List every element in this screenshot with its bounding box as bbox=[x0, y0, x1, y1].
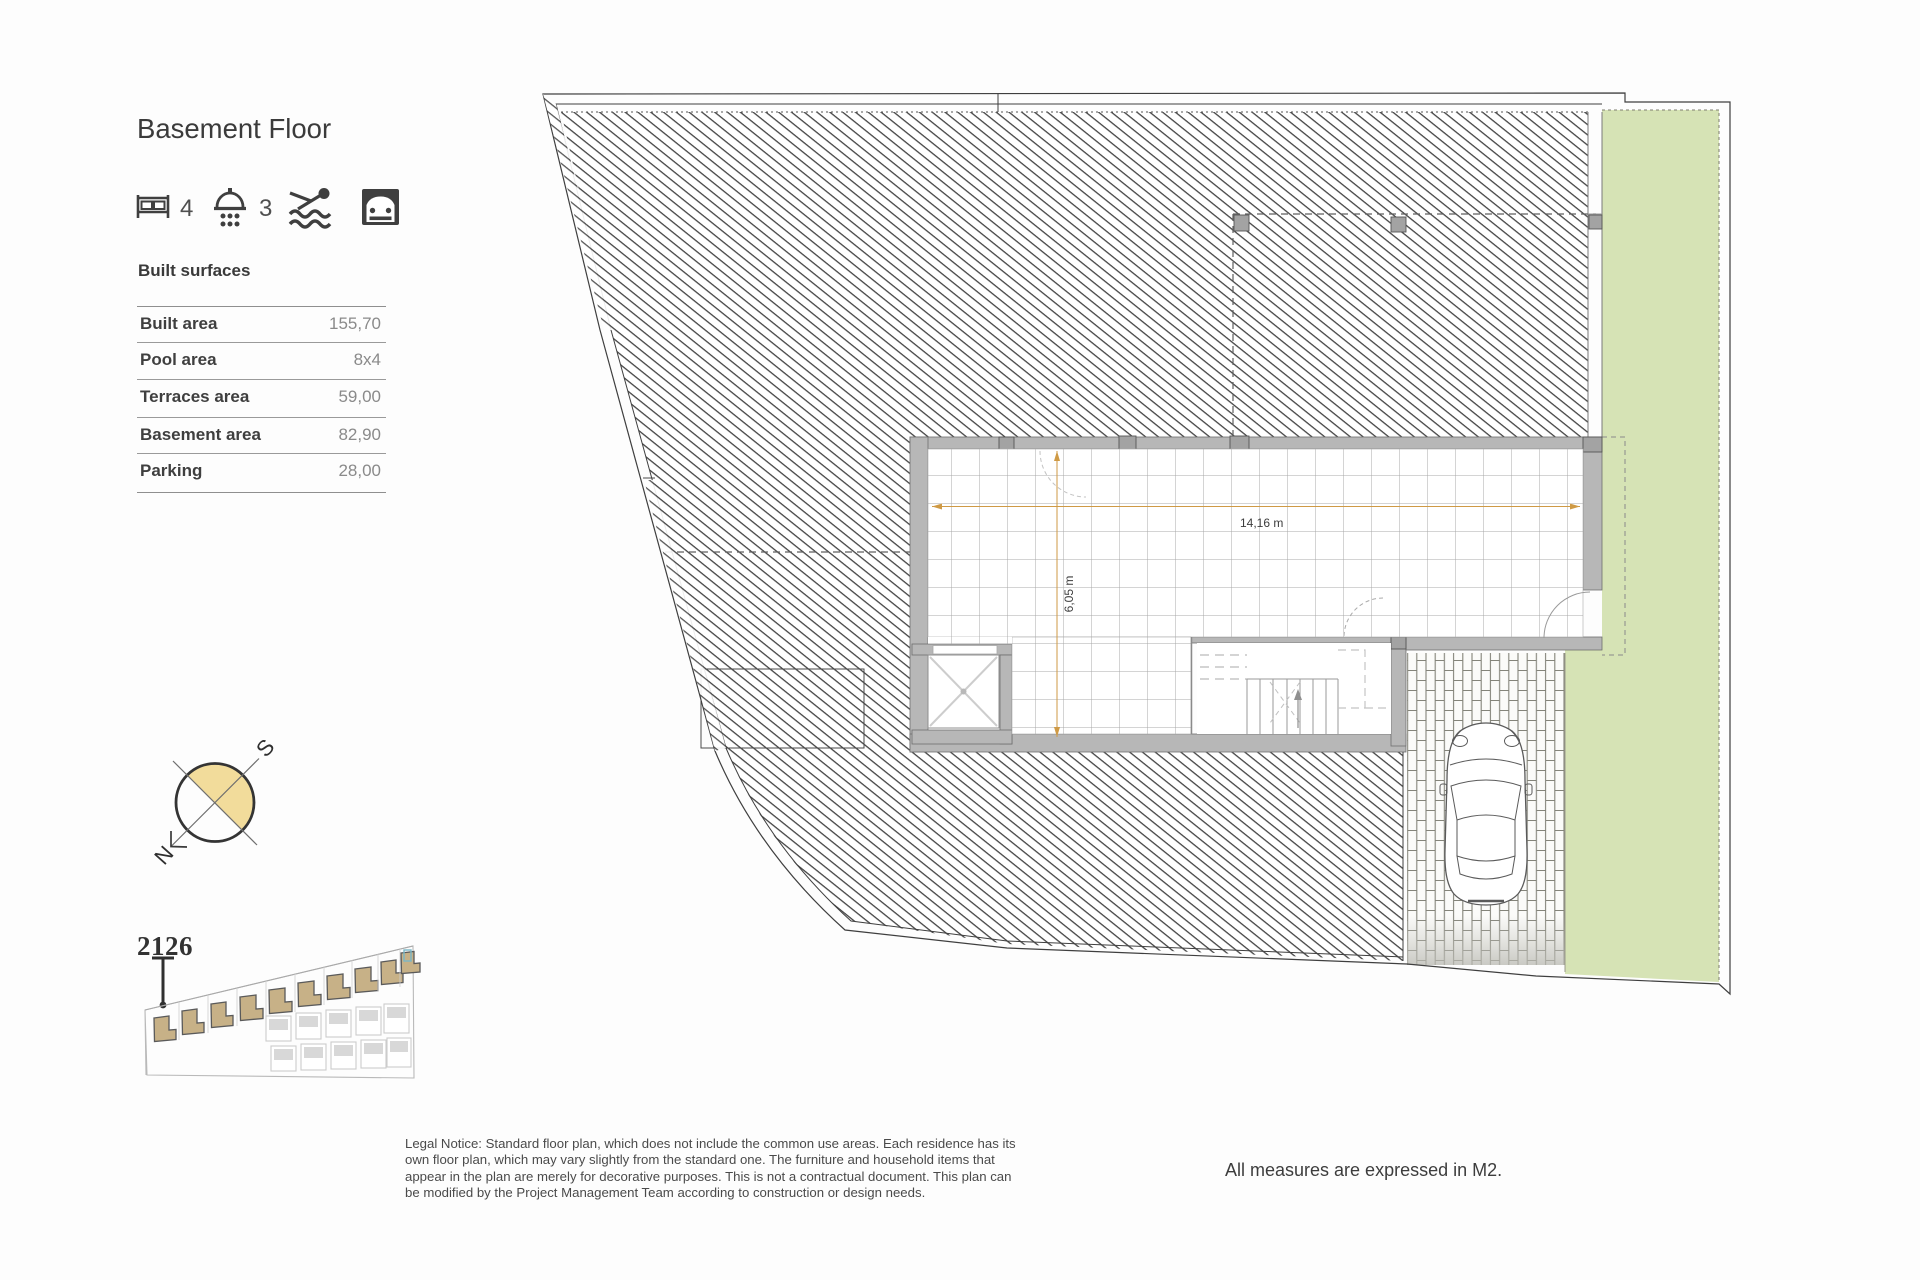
svg-text:N: N bbox=[149, 841, 178, 870]
svg-text:4: 4 bbox=[180, 195, 193, 222]
svg-text:6,05 m: 6,05 m bbox=[1062, 576, 1076, 613]
svg-text:S: S bbox=[251, 735, 279, 762]
svg-text:3: 3 bbox=[259, 195, 272, 222]
svg-text:14,16 m: 14,16 m bbox=[1240, 516, 1283, 530]
